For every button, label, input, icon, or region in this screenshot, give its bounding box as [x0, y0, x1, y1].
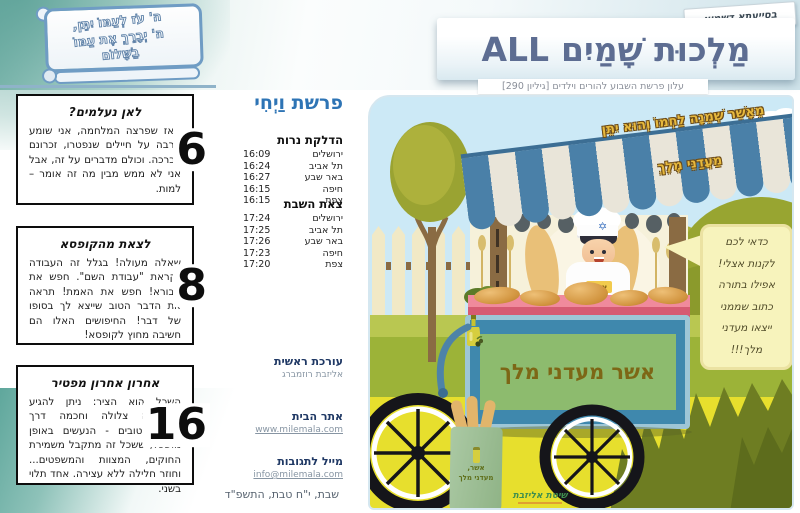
page-number-badge: 16 — [143, 403, 210, 447]
shabbat-end-times: צאת השבת ירושלים17:24 תל אביב17:25 באר ש… — [243, 197, 343, 271]
email-block: מייל לתגובות info@milemala.com — [222, 455, 343, 480]
time-row: באר שבע17:26 — [243, 236, 343, 248]
editor-header: עורכת ראשית — [222, 355, 343, 368]
email-link[interactable]: info@milemala.com — [222, 470, 343, 480]
question-box-body: מאז שפרצה המלחמה, אני שומע הרבה על חיילי… — [29, 125, 181, 197]
speech-bubble-tail — [664, 235, 702, 267]
website-block: אתר הבית www.milemala.com — [222, 410, 343, 435]
parsha-title: פרשת וַיְחִי — [254, 92, 343, 114]
baker-eye — [602, 250, 606, 254]
time-row: חיפה17:23 — [243, 248, 343, 260]
olive-oil-bottle-mini-icon — [473, 447, 480, 463]
title-hebrew: מַלְכוּת שָׁמַיִם — [561, 30, 751, 69]
cart-sign-product: מעדני מלך — [500, 360, 605, 384]
website-link[interactable]: www.milemala.com — [222, 425, 343, 435]
title-card: ALLמַלְכוּת שָׁמַיִם — [437, 18, 795, 80]
question-box-body: שאלה מעולה! בגלל זה העבודה נקראת "עבודת … — [29, 257, 181, 344]
studio-logo: שיטת אליזבת — [508, 491, 572, 504]
editor-name: אליזבת רוזמברג — [222, 370, 343, 380]
page-number-badge: 8 — [173, 264, 210, 308]
website-header: אתר הבית — [222, 410, 343, 423]
title-latin: ALL — [481, 30, 549, 69]
newsletter-page: בסייעתא דשמיא ALLמַלְכוּת שָׁמַיִם עלון … — [0, 0, 800, 513]
question-box-2: לצאת מהקופסא שאלה מעולה! בגלל זה העבודה … — [16, 226, 194, 345]
newsletter-subtitle: עלון פרשת השבוע להורים וילדים [גיליון 29… — [478, 79, 708, 94]
hebrew-date: שבת, י"ח טבת, התשפ"ד — [225, 488, 339, 501]
newsletter-title: ALLמַלְכוּת שָׁמַיִם — [481, 30, 750, 69]
candle-lighting-header: הדלקת נרות — [243, 133, 343, 147]
baker-eye — [590, 250, 594, 254]
cart-body: אשר מעדני מלך — [465, 315, 690, 429]
shabbat-end-header: צאת השבת — [243, 197, 343, 211]
time-row: חיפה16:15 — [243, 184, 343, 196]
cart-sign: אשר מעדני מלך — [480, 334, 676, 410]
bag-label: אשר, מעדני מלך — [450, 447, 502, 483]
speech-bubble: כדאי לכם לקנות אצלי! אפילו בתורה כתוב שמ… — [700, 224, 793, 370]
time-row: צפת17:20 — [243, 259, 343, 271]
question-box-1: לאן נעלמים? מאז שפרצה המלחמה, אני שומע ה… — [16, 94, 194, 205]
cart-sign-name: אשר — [611, 360, 655, 384]
info-column: פרשת וַיְחִי הדלקת נרות ירושלים16:09 תל … — [222, 92, 343, 512]
cover-illustration: ✡ אשר מֵאָשֵׁר שְׁמֵנָה לַחְמוֹ וְהוּא י… — [368, 95, 794, 510]
verse-scroll: ה' עֹז לְעַמּוֹ יִתֵּן, ה' יְבָרֵךְ אֶת … — [32, 1, 207, 89]
time-row: ירושלים17:24 — [243, 213, 343, 225]
email-header: מייל לתגובות — [222, 455, 343, 468]
time-row: באר שבע16:27 — [243, 172, 343, 184]
candle-lighting-times: הדלקת נרות ירושלים16:09 תל אביב16:24 באר… — [243, 133, 343, 207]
olive-oil-bottle-icon — [465, 315, 483, 347]
editor-block: עורכת ראשית אליזבת רוזמברג — [222, 355, 343, 380]
question-box-title: לצאת מהקופסא — [18, 237, 192, 251]
time-row: ירושלים16:09 — [243, 149, 343, 161]
time-row: תל אביב17:25 — [243, 225, 343, 237]
time-row: תל אביב16:24 — [243, 161, 343, 173]
question-box-title: לאן נעלמים? — [18, 105, 192, 119]
question-box-3: אחרון אחרון מפטיר השכל הוא הציר: ניתן לה… — [16, 365, 194, 485]
bread-boule — [564, 282, 608, 305]
page-number-badge: 6 — [173, 128, 210, 172]
question-box-title: אחרון אחרון מפטיר — [18, 376, 192, 390]
